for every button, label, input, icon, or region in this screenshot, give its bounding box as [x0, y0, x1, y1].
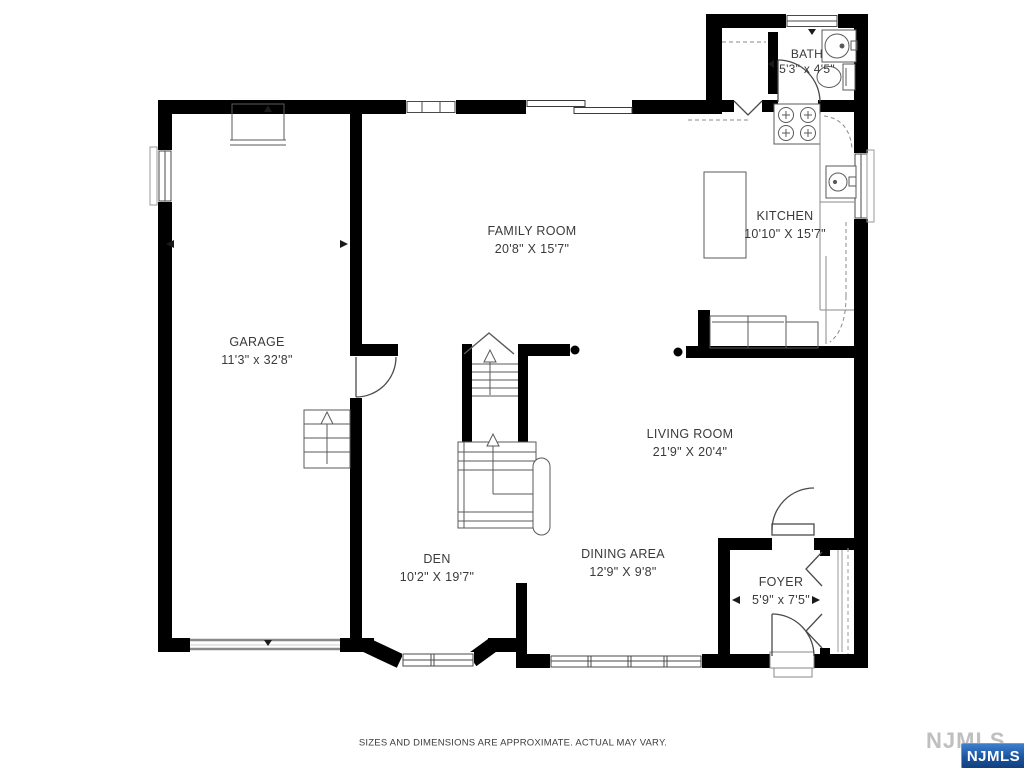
front-door	[770, 614, 814, 677]
room-name: BATH	[779, 47, 835, 62]
den-bay-window	[402, 652, 474, 667]
kitchen-island	[704, 172, 746, 258]
floorplan-drawing	[0, 0, 1024, 768]
room-label-den: DEN 10'2" X 19'7"	[400, 550, 475, 586]
room-name: FOYER	[752, 573, 810, 591]
bath-window	[786, 14, 838, 28]
room-name: FAMILY ROOM	[488, 222, 577, 240]
room-dims: 20'8" X 15'7"	[488, 240, 577, 258]
front-step	[774, 668, 812, 677]
garage-fixtures	[230, 104, 350, 468]
stove	[774, 104, 820, 144]
family-room-window	[406, 100, 456, 114]
room-dims: 5'9" x 7'5"	[752, 591, 810, 609]
room-dims: 10'2" X 19'7"	[400, 568, 475, 586]
room-dims: 11'3" x 32'8"	[221, 351, 293, 369]
room-name: KITCHEN	[744, 207, 826, 225]
room-label-foyer: FOYER 5'9" x 7'5"	[752, 573, 810, 609]
wall-end-caps	[571, 346, 683, 357]
dining-window	[550, 654, 702, 668]
room-name: DEN	[400, 550, 475, 568]
room-dims: 12'9" X 9'8"	[581, 563, 665, 581]
kitchen-sink	[826, 166, 856, 198]
room-dims: 5'3" x 4'5"	[779, 62, 835, 77]
room-label-family-room: FAMILY ROOM 20'8" X 15'7"	[488, 222, 577, 258]
disclaimer-text: SIZES AND DIMENSIONS ARE APPROXIMATE. AC…	[359, 738, 667, 749]
room-name: LIVING ROOM	[647, 425, 734, 443]
foyer-living-door	[772, 488, 814, 535]
foyer-closet-interior	[838, 548, 848, 654]
garage-steps	[304, 410, 350, 468]
sliding-door	[526, 100, 632, 114]
stair-banister	[533, 458, 550, 535]
room-dims: 10'10" X 15'7"	[744, 225, 826, 243]
room-label-dining-area: DINING AREA 12'9" X 9'8"	[581, 545, 665, 581]
room-name: GARAGE	[221, 333, 293, 351]
room-name: DINING AREA	[581, 545, 665, 563]
room-label-kitchen: KITCHEN 10'10" X 15'7"	[744, 207, 826, 243]
room-label-bath: BATH 5'3" x 4'5"	[779, 47, 835, 77]
njmls-logo-badge: NJMLS	[961, 743, 1024, 768]
kitchen-bench	[710, 316, 818, 348]
room-label-living-room: LIVING ROOM 21'9" X 20'4"	[647, 425, 734, 461]
closet-bifold-door	[734, 101, 762, 115]
garage-entry-door	[350, 356, 396, 398]
room-label-garage: GARAGE 11'3" x 32'8"	[221, 333, 293, 369]
kitchen-window	[854, 150, 874, 222]
floorplan-page: FAMILY ROOM 20'8" X 15'7" KITCHEN 10'10"…	[0, 0, 1024, 768]
room-dims: 21'9" X 20'4"	[647, 443, 734, 461]
garage-window	[150, 147, 172, 205]
